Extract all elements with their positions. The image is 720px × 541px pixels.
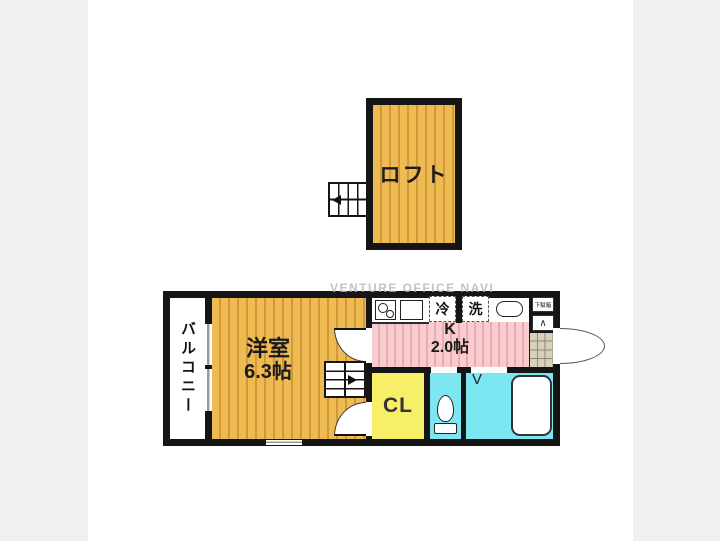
entry-step-box: ∧	[532, 315, 554, 331]
entry-step-mark: ∧	[539, 318, 546, 329]
entrance-door-swing-icon	[560, 328, 605, 364]
bottom-window-icon	[266, 440, 302, 445]
sink-icon	[400, 300, 423, 320]
stairs-arrow-left-icon	[332, 195, 341, 205]
toilet-icon	[437, 395, 454, 422]
washbasin-icon	[496, 301, 523, 317]
western-room-label-block: 洋室 6.3帖	[198, 336, 338, 384]
western-room-size: 6.3帖	[198, 361, 338, 384]
burner-icon	[386, 310, 394, 318]
entrance-threshold	[553, 328, 560, 364]
toilet-tank-icon	[434, 423, 457, 434]
loft-stairs	[328, 182, 368, 217]
kitchen-size: 2.0帖	[400, 339, 500, 357]
closet-label: CL	[383, 394, 413, 418]
washer-label: 洗	[469, 299, 483, 319]
stove-icon	[375, 300, 396, 320]
closet: CL	[372, 373, 424, 439]
page-margin-right	[633, 0, 720, 541]
western-room-label: 洋室	[198, 336, 338, 361]
bathtub-icon	[511, 375, 552, 436]
balcony-label: バルコニー	[177, 321, 198, 416]
bath-door-mark: V	[472, 371, 482, 388]
fridge-label: 冷	[436, 299, 450, 319]
shoe-cabinet: 下駄箱	[532, 297, 554, 312]
shoe-cabinet-label: 下駄箱	[535, 301, 552, 309]
loft-label: ロフト	[380, 159, 449, 189]
stairs-arrow-right-icon	[348, 375, 357, 385]
loft-floor: ロフト	[373, 105, 455, 243]
loft-room: ロフト	[366, 98, 462, 250]
floorplan-image: ロフト バルコニー 洋室 6.3帖 冷 洗 K 2.0帖	[0, 0, 720, 541]
kitchen-label: K	[400, 321, 500, 339]
washer-box: 洗	[462, 296, 489, 322]
watermark-text: VENTURE OFFICE NAVI	[330, 281, 510, 295]
fridge-box: 冷	[429, 296, 456, 322]
kitchen-label-block: K 2.0帖	[400, 321, 500, 356]
entry-tiles	[530, 333, 553, 367]
page-margin-left	[0, 0, 88, 541]
